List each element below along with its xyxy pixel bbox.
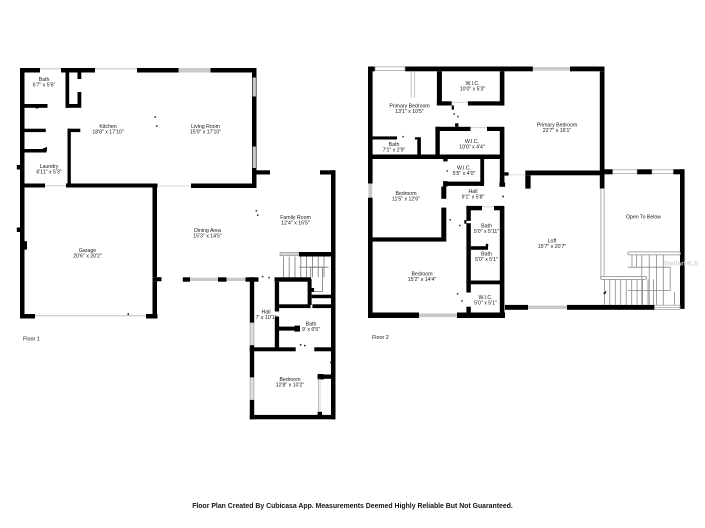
svg-text:Open To Below: Open To Below xyxy=(626,214,661,220)
svg-text:5'0" x 5'1": 5'0" x 5'1" xyxy=(475,257,498,263)
svg-text:13'1" x 10'5": 13'1" x 10'5" xyxy=(395,109,424,115)
svg-text:5'0" x 5'11": 5'0" x 5'11" xyxy=(474,229,499,235)
svg-text:9' x 6'5": 9' x 6'5" xyxy=(302,327,320,333)
svg-text:Floor 2: Floor 2 xyxy=(372,335,389,341)
svg-text:15'7" x 20'7": 15'7" x 20'7" xyxy=(538,244,567,250)
svg-text:Floor Plan Created By Cubicasa: Floor Plan Created By Cubicasa App. Meas… xyxy=(192,503,513,510)
svg-text:Floor 1: Floor 1 xyxy=(23,337,40,343)
svg-text:9'1" x 5'8": 9'1" x 5'8" xyxy=(462,194,485,200)
svg-text:7' x 10'1": 7' x 10'1" xyxy=(256,315,277,321)
svg-text:7'1" x 2'9": 7'1" x 2'9" xyxy=(383,147,406,153)
svg-text:StellarMLS: StellarMLS xyxy=(663,261,699,268)
svg-text:12'8" x 10'2": 12'8" x 10'2" xyxy=(276,382,305,388)
svg-text:10'0" x 4'4": 10'0" x 4'4" xyxy=(459,144,485,150)
svg-text:12'4" x 16'5": 12'4" x 16'5" xyxy=(281,220,310,226)
svg-text:10'0" x 5'3": 10'0" x 5'3" xyxy=(460,86,486,92)
svg-text:20'6" x 20'2": 20'6" x 20'2" xyxy=(73,253,102,259)
svg-text:15'0" x 17'10": 15'0" x 17'10" xyxy=(190,129,221,135)
svg-text:5'5" x 4'0": 5'5" x 4'0" xyxy=(453,171,476,177)
svg-text:6'11" x 5'3": 6'11" x 5'3" xyxy=(36,170,61,176)
svg-text:15'2" x 14'4": 15'2" x 14'4" xyxy=(408,277,437,283)
svg-text:11'5" x 12'6": 11'5" x 12'6" xyxy=(392,196,420,202)
svg-text:6'7" x 5'6": 6'7" x 5'6" xyxy=(33,82,56,88)
svg-text:15'3" x 14'5": 15'3" x 14'5" xyxy=(193,233,222,239)
svg-text:5'0" x 5'1": 5'0" x 5'1" xyxy=(474,301,497,307)
svg-text:18'8" x 17'10": 18'8" x 17'10" xyxy=(92,129,123,135)
svg-text:22'7" x 16'1": 22'7" x 16'1" xyxy=(543,128,572,134)
